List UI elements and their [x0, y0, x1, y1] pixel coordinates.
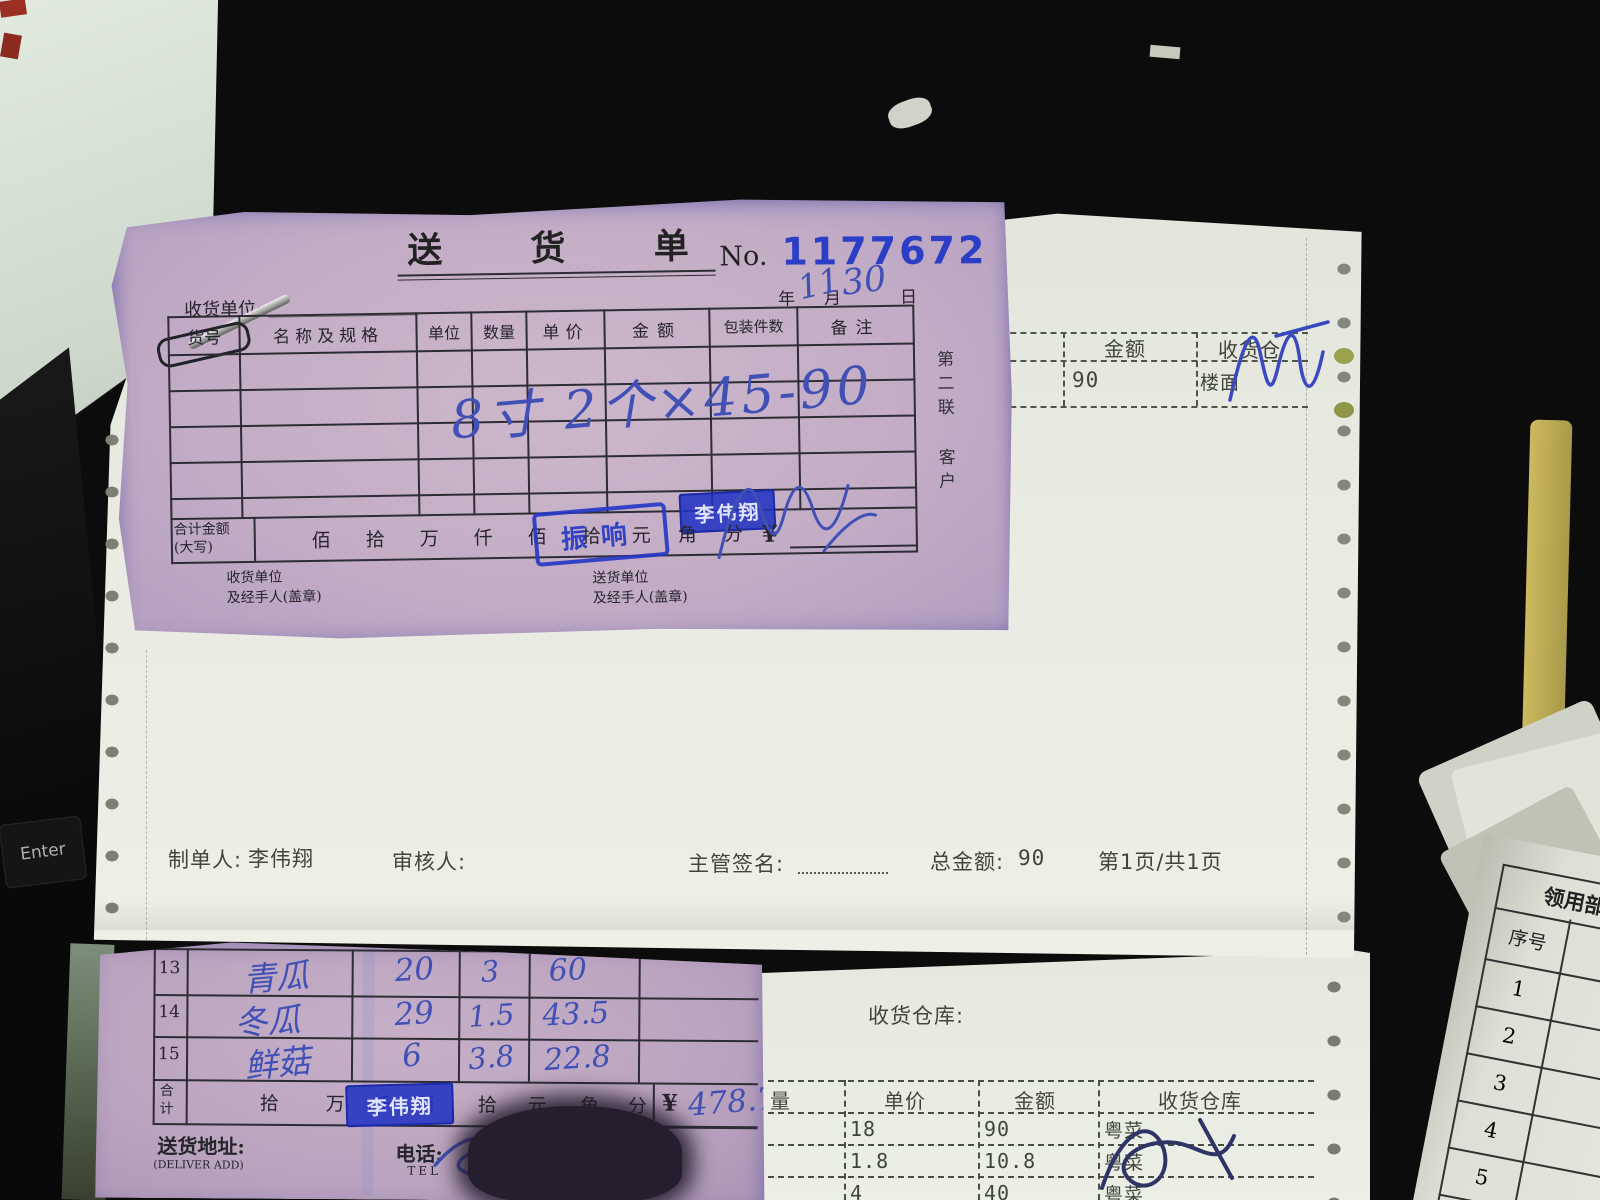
unit-char: 角 — [678, 520, 697, 547]
table-line — [153, 1079, 758, 1085]
col-header: 备注 — [798, 312, 912, 339]
row-number: 13 — [159, 958, 181, 978]
cell-price: 18 — [850, 1117, 876, 1141]
hw-item-name: 鲜菇 — [242, 1034, 312, 1088]
cell-price: 1.8 — [850, 1149, 889, 1173]
photo-scene: Enter 领用部门 序号 1 2 3 4 5 6 收货仓库: — [0, 0, 1600, 1200]
address-label-en: (DELIVER ADD) — [153, 1158, 244, 1172]
no-label: No. — [719, 241, 767, 273]
table-line — [1196, 332, 1198, 406]
white-speck — [1150, 45, 1181, 60]
signature-scribble — [1082, 1108, 1252, 1200]
hw-price: 3 — [480, 954, 501, 989]
maker-value: 李伟翔 — [248, 843, 314, 873]
supervisor-label: 主管签名: — [688, 848, 784, 878]
table-line — [768, 1080, 1314, 1082]
total-label: 合计金额(大写) — [174, 521, 231, 557]
form-title: 送 货 单 — [407, 217, 727, 273]
table-line — [253, 517, 256, 561]
hw-date-day: 30 — [840, 259, 889, 304]
grand-total-value: 90 — [1018, 846, 1045, 870]
tractor-holes-bottom-right — [1321, 960, 1347, 1200]
tinted-hole — [1334, 348, 1354, 364]
table-line — [978, 1080, 980, 1200]
hw-amount: 43.5 — [542, 996, 610, 1034]
cell-amount: 10.8 — [984, 1149, 1036, 1173]
mini-header-amount: 金额 — [1104, 333, 1146, 362]
unit-char: 万 — [326, 1089, 345, 1116]
hw-qty: 6 — [400, 1037, 423, 1075]
hw-qty: 29 — [393, 995, 435, 1033]
cell-amount: 90 — [984, 1117, 1010, 1141]
tinted-hole — [1334, 402, 1354, 418]
table-line — [458, 950, 461, 1081]
col-header: 货号 — [169, 323, 238, 349]
copy-label: 第二联客户 — [931, 350, 959, 540]
table-line — [638, 951, 641, 1082]
col-header: 名称及规格 — [240, 320, 415, 348]
col-header: 单价 — [527, 317, 603, 343]
perforation-line — [146, 650, 147, 940]
white-speck — [885, 93, 935, 132]
unit-char: 万 — [420, 524, 439, 551]
oval-stamp: 振响 — [532, 502, 670, 567]
col-header: 单位 — [417, 319, 470, 344]
enter-key-label: Enter — [19, 839, 67, 864]
hw-qty: 20 — [394, 951, 436, 989]
pen-scribble — [703, 455, 885, 573]
total-row-label: 合计 — [160, 1082, 174, 1118]
unit-char: 佰 — [312, 526, 331, 553]
col-header-amount: 金额 — [1014, 1085, 1056, 1114]
hw-amount: 22.8 — [543, 1039, 612, 1078]
mini-amount-value: 90 — [1072, 368, 1099, 392]
col-header: 包装件数 — [710, 315, 796, 337]
maker-label: 制单人: — [168, 844, 242, 874]
cell-amount: 40 — [984, 1181, 1010, 1200]
unit-char: 拾 — [478, 1090, 497, 1117]
sign-block-right: 送货单位及经手人(盖章) — [592, 568, 688, 609]
row-number: 15 — [158, 1044, 180, 1064]
table-line — [351, 949, 354, 1080]
grand-total-label: 总金额: — [930, 846, 1004, 876]
paper-crease — [90, 900, 1368, 930]
cell-price: 4 — [850, 1181, 863, 1200]
signature-underline — [798, 872, 888, 874]
table-line — [1063, 332, 1065, 406]
col-header: 数量 — [472, 319, 525, 344]
address-label: 送货地址: — [157, 1130, 245, 1160]
hw-price: 1.5 — [467, 997, 515, 1034]
unit-char: 拾 — [366, 525, 385, 552]
signature-scribble — [1218, 312, 1333, 412]
requisition-card: 领用部门 序号 1 2 3 4 5 6 — [1412, 834, 1600, 1200]
unit-char: 拾 — [260, 1089, 279, 1116]
page-info: 第1页/共1页 — [1098, 846, 1223, 876]
unit-char: 仟 — [474, 523, 493, 550]
bottom-white-sheet: 收货仓库: 量 单价 金额 收货仓库 18 90 粤菜 1.8 10.8 粤菜 … — [752, 948, 1370, 1200]
shadow-blob — [468, 1106, 682, 1200]
hw-amount: 60 — [548, 952, 588, 989]
warehouse-label: 收货仓库: — [868, 1000, 964, 1030]
hw-entry: 8寸 2个×45-90 — [447, 342, 876, 453]
row-number: 14 — [158, 1002, 180, 1022]
table-line — [528, 951, 531, 1082]
sign-block-left: 收货单位及经手人(盖章) — [226, 568, 322, 609]
paper-crease — [361, 946, 375, 1196]
table-line — [844, 1080, 846, 1200]
delivery-note-slip: 送 货 单 No. 1177672 年 月 日 11 30 收货单位: — [109, 191, 1018, 653]
hw-price: 3.8 — [467, 1039, 516, 1077]
col-header-qty: 量 — [770, 1085, 791, 1114]
col-header-price: 单价 — [884, 1085, 926, 1114]
yuan-symbol: ¥ — [662, 1090, 678, 1117]
table-line — [912, 304, 918, 552]
col-header: 金额 — [605, 316, 708, 343]
enter-key: Enter — [0, 815, 88, 889]
auditor-label: 审核人: — [392, 846, 466, 876]
